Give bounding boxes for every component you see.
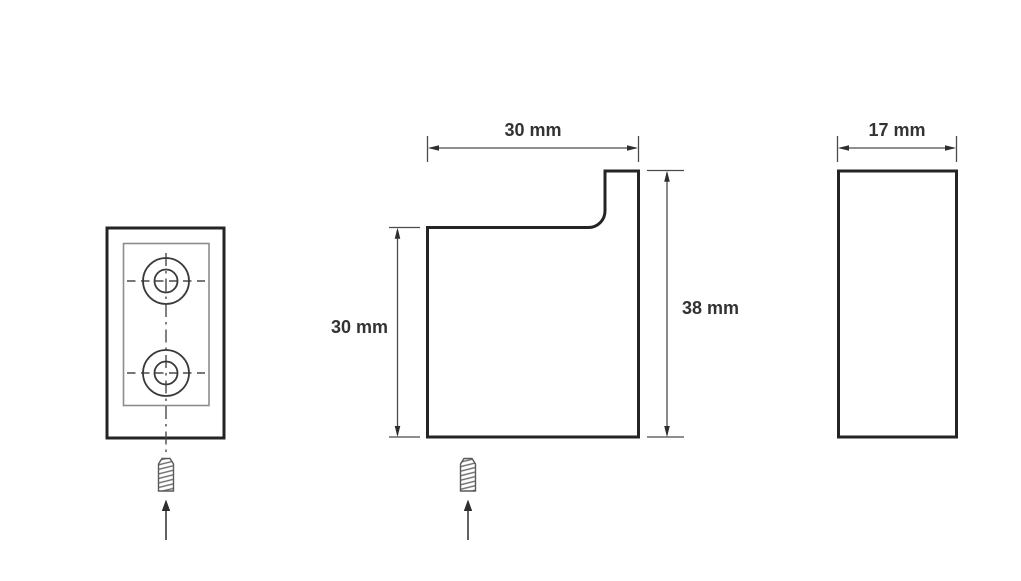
- dimension-body-height: 30 mm: [331, 228, 420, 438]
- arrow-head: [464, 500, 472, 512]
- arrow-up-icon: [162, 500, 170, 541]
- arrow-head: [664, 171, 670, 182]
- edge-view: 17 mm: [838, 120, 957, 437]
- arrow-head: [838, 145, 849, 151]
- technical-drawing: 30 mm 30 mm 38 mm: [0, 0, 1021, 581]
- dimension-label: 38 mm: [682, 298, 739, 318]
- edge-outline: [839, 171, 957, 437]
- hook-profile-outline: [428, 171, 639, 437]
- arrow-head: [627, 145, 638, 151]
- arrow-up-icon: [464, 500, 472, 541]
- dimension-depth: 17 mm: [838, 120, 957, 162]
- front-view: [107, 228, 224, 540]
- dimension-label: 17 mm: [868, 120, 925, 140]
- dimension-width: 30 mm: [428, 120, 639, 162]
- side-view: 30 mm 30 mm 38 mm: [331, 120, 739, 540]
- dimension-label: 30 mm: [331, 317, 388, 337]
- screw-icon: [159, 459, 174, 492]
- arrow-head: [162, 500, 170, 512]
- screw-icon: [461, 459, 476, 492]
- arrow-head: [428, 145, 439, 151]
- dimension-total-height: 38 mm: [647, 171, 739, 438]
- dimension-label: 30 mm: [504, 120, 561, 140]
- arrow-head: [664, 426, 670, 437]
- arrow-head: [945, 145, 956, 151]
- arrow-head: [395, 228, 401, 239]
- arrow-head: [395, 426, 401, 437]
- technical-drawing-page: 30 mm 30 mm 38 mm: [0, 0, 1021, 581]
